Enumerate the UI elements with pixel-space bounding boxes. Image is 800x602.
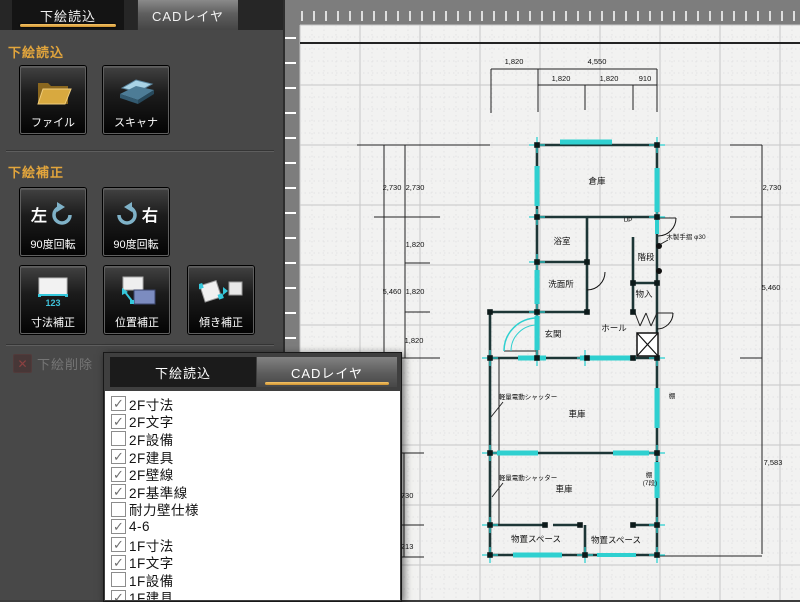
position-correct-icon [105, 267, 169, 316]
wall-post [582, 552, 588, 558]
wall-post [630, 280, 636, 286]
wall-post [487, 552, 493, 558]
delete-x-icon: ✕ [13, 354, 32, 373]
folder-icon [21, 67, 85, 116]
cad-layer-popup: 下絵読込 CADレイヤ ✓2F寸法✓2F文字2F設備✓2F建具✓2F壁線✓2F基… [103, 352, 402, 602]
rotate-left-icon: 左 [21, 189, 85, 238]
layer-checkbox-2[interactable] [111, 431, 126, 446]
wall-post [534, 309, 540, 315]
wall-post [487, 522, 493, 528]
layer-row: 耐力壁仕様 [111, 501, 400, 519]
layer-checkbox-10[interactable] [111, 572, 126, 587]
scanner-icon [104, 67, 168, 116]
room-label: 車庫 [568, 409, 586, 419]
dimension-label: 1,820 [406, 240, 425, 249]
rotate-right-kanji: 右 [142, 202, 158, 226]
tab-cad-layer[interactable]: CADレイヤ [137, 0, 238, 30]
layer-checkbox-1[interactable]: ✓ [111, 414, 126, 429]
wall-post [584, 259, 590, 265]
active-tab-underline [20, 24, 116, 27]
wall-post [654, 280, 660, 286]
dimension-label: 5,460 [383, 287, 402, 296]
dimension-label: 4,550 [588, 57, 607, 66]
wall-post [534, 355, 540, 361]
wall-post [654, 552, 660, 558]
room-label: 倉庫 [588, 176, 606, 186]
layer-row: ✓2F文字 [111, 413, 400, 431]
room-label: 階段 [637, 252, 655, 262]
divider [6, 150, 274, 152]
layer-label: 1F建具 [129, 587, 174, 600]
wall-post [584, 355, 590, 361]
layer-row: ✓1F文字 [111, 553, 400, 571]
handrail-dot [656, 243, 662, 249]
room-label: 物置スペース [591, 535, 641, 545]
dimension-label: 1,820 [552, 74, 571, 83]
rotate-left-90-button[interactable]: 左 90度回転 [20, 188, 86, 256]
layer-label: 4-6 [129, 519, 150, 534]
file-button-label: ファイル [31, 116, 75, 133]
annotation-label: 木製手摺 φ30 [666, 232, 706, 241]
tab-label: CADレイヤ [152, 6, 224, 25]
dimension-label: 910 [639, 74, 652, 83]
dimension-label: 1,820 [600, 74, 619, 83]
section-title-load: 下絵読込 [8, 42, 64, 61]
dimension-label: 1,820 [505, 57, 524, 66]
dimension-correct-label: 寸法補正 [31, 316, 75, 333]
annotation-label: 棚 [646, 470, 653, 479]
rotate-left-kanji: 左 [31, 202, 47, 226]
layer-checkbox-11[interactable]: ✓ [111, 590, 126, 600]
rotate-left-label: 90度回転 [30, 238, 75, 255]
wall-post [630, 309, 636, 315]
layer-row: ✓4-6 [111, 518, 400, 536]
dimension-label: 1,820 [406, 287, 425, 296]
wall-post [654, 522, 660, 528]
position-correct-button[interactable]: 位置補正 [104, 266, 170, 334]
layer-row: ✓2F建具 [111, 448, 400, 466]
dimension-correct-button[interactable]: 123 寸法補正 [20, 266, 86, 334]
divider [6, 344, 274, 346]
room-label: 物入 [635, 289, 653, 299]
tab-label: 下絵読込 [40, 6, 96, 25]
layer-row: ✓2F基準線 [111, 483, 400, 501]
file-button[interactable]: ファイル [20, 66, 86, 134]
popup-tab-label: CADレイヤ [291, 363, 363, 382]
rotate-right-90-button[interactable]: 右 90度回転 [103, 188, 169, 256]
room-label: 浴室 [553, 236, 571, 246]
dimension-label: 2,730 [406, 183, 425, 192]
dimension-label: 2,730 [763, 183, 782, 192]
tilt-correct-label: 傾き補正 [199, 316, 243, 333]
main-tab-bar: 下絵読込 CADレイヤ [0, 0, 283, 30]
wall-post [542, 522, 548, 528]
wall-post [534, 142, 540, 148]
dimension-label: 7,583 [764, 458, 783, 467]
room-label: 玄関 [544, 329, 561, 339]
annotation-label: 棚 [669, 391, 676, 400]
layer-checkbox-7[interactable]: ✓ [111, 519, 126, 534]
tab-shitae-yomikomi[interactable]: 下絵読込 [12, 0, 124, 30]
wall-post [584, 309, 590, 315]
layer-row: ✓2F寸法 [111, 395, 400, 413]
rotate-right-icon: 右 [104, 189, 168, 238]
layer-label: 耐力壁仕様 [129, 499, 199, 519]
dimension-label: 5,460 [762, 283, 781, 292]
layer-checkbox-8[interactable]: ✓ [111, 537, 126, 552]
annotation-label: 軽量電動シャッター [499, 473, 558, 482]
delete-underlay-label: 下絵削除 [37, 354, 93, 373]
popup-tab-shitae-yomikomi[interactable]: 下絵読込 [110, 357, 256, 387]
position-correct-label: 位置補正 [115, 316, 159, 333]
layer-row: ✓1F寸法 [111, 536, 400, 554]
svg-text:123: 123 [45, 298, 60, 308]
wall-post [577, 522, 583, 528]
dimension-correct-icon: 123 [21, 267, 85, 316]
annotation-label: 軽量電動シャッター [499, 392, 558, 401]
layer-row: ✓2F壁線 [111, 465, 400, 483]
layer-checkbox-6[interactable] [111, 502, 126, 517]
dimension-label: 1,820 [405, 336, 424, 345]
section-title-correct: 下絵補正 [8, 162, 64, 181]
active-tab-underline [265, 382, 389, 385]
layer-checkbox-4[interactable]: ✓ [111, 467, 126, 482]
scanner-button[interactable]: スキャナ [103, 66, 169, 134]
layer-checkbox-list: ✓2F寸法✓2F文字2F設備✓2F建具✓2F壁線✓2F基準線耐力壁仕様✓4-6✓… [105, 391, 400, 600]
tilt-correct-button[interactable]: 傾き補正 [188, 266, 254, 334]
room-label: 洗面所 [548, 279, 574, 289]
wall-post [654, 450, 660, 456]
wall-post [630, 355, 636, 361]
handrail-dot [656, 268, 662, 274]
room-label: 車庫 [555, 484, 573, 494]
rotate-right-label: 90度回転 [113, 238, 158, 255]
wall-post [654, 214, 660, 220]
wall-post [534, 214, 540, 220]
annotation-label: (7段) [643, 478, 657, 487]
dimension-label: 2,730 [383, 183, 402, 192]
tilt-correct-icon [189, 267, 253, 316]
room-label: ホール [601, 323, 627, 333]
layer-checkbox-3[interactable]: ✓ [111, 449, 126, 464]
layer-row: ✓1F建具 [111, 589, 400, 600]
layer-row: 1F設備 [111, 571, 400, 589]
wall-post [534, 259, 540, 265]
layer-checkbox-5[interactable]: ✓ [111, 484, 126, 499]
layer-checkbox-9[interactable]: ✓ [111, 555, 126, 570]
annotation-label: UP [623, 217, 632, 224]
wall-post [487, 450, 493, 456]
wall-post [654, 142, 660, 148]
layer-checkbox-0[interactable]: ✓ [111, 396, 126, 411]
room-label: 物置スペース [511, 534, 561, 544]
popup-tab-label: 下絵読込 [155, 363, 211, 382]
delete-underlay-button: ✕ 下絵削除 [13, 354, 93, 373]
wall-post [630, 522, 636, 528]
wall-post [487, 309, 493, 315]
layer-row: 2F設備 [111, 430, 400, 448]
popup-tab-cad-layer[interactable]: CADレイヤ [257, 357, 397, 387]
wall-post [487, 355, 493, 361]
scanner-button-label: スキャナ [114, 116, 158, 133]
